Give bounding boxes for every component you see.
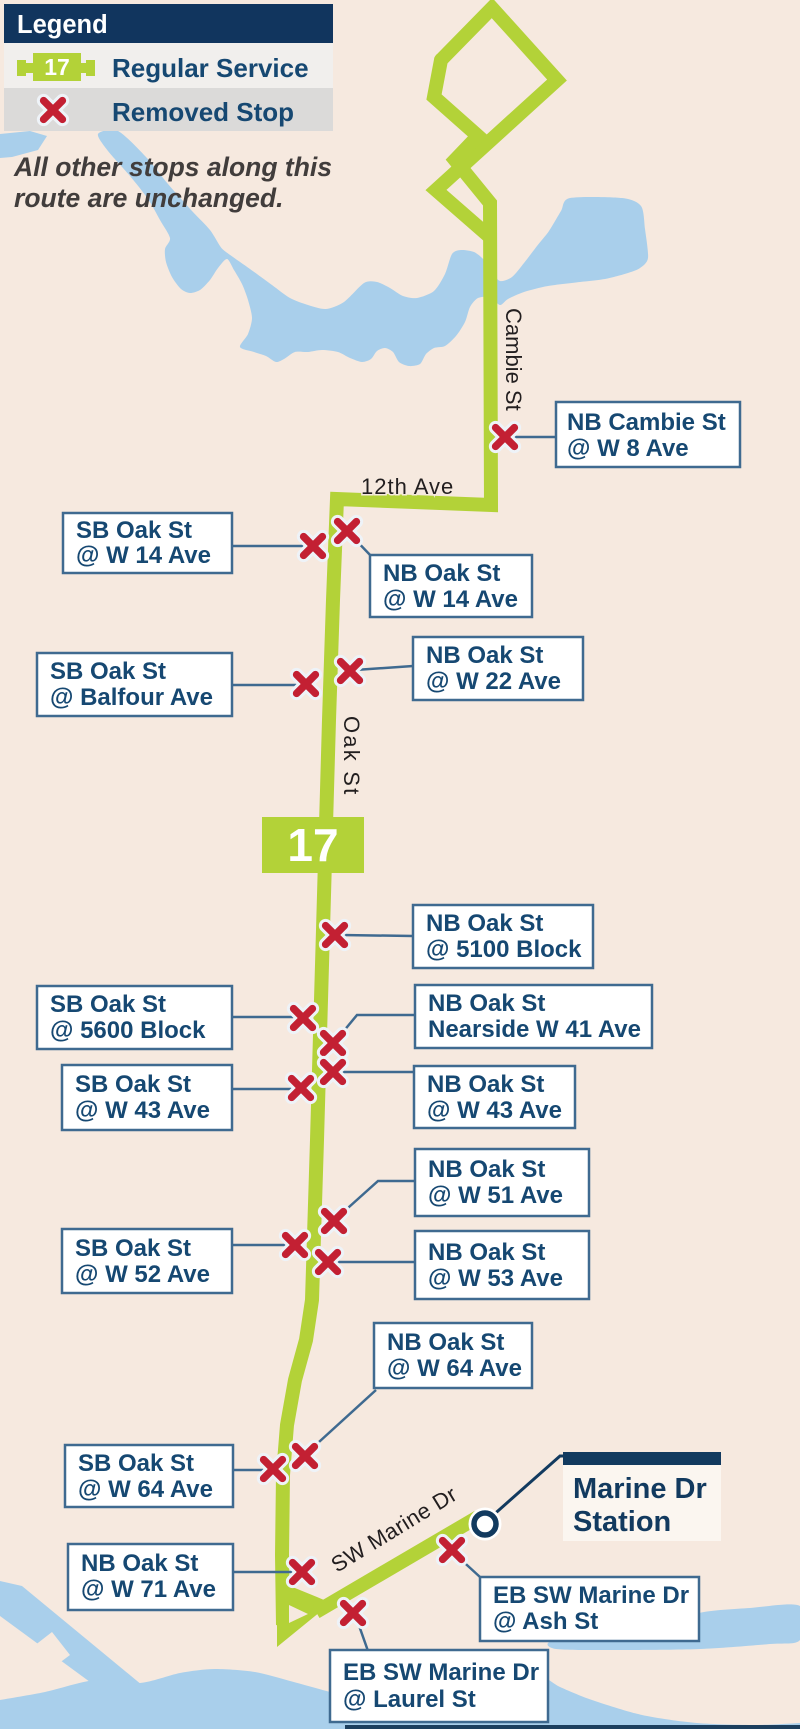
svg-text:@ 5600 Block: @ 5600 Block xyxy=(50,1017,206,1044)
svg-text:@ W 53 Ave: @ W 53 Ave xyxy=(428,1265,563,1292)
svg-text:NB Oak St: NB Oak St xyxy=(428,1239,545,1266)
svg-text:12th Ave: 12th Ave xyxy=(361,474,454,499)
svg-text:NB Oak St: NB Oak St xyxy=(428,990,545,1017)
svg-text:@ Ash St: @ Ash St xyxy=(493,1608,598,1635)
svg-text:@ W 51 Ave: @ W 51 Ave xyxy=(428,1182,563,1209)
svg-text:@ W 8 Ave: @ W 8 Ave xyxy=(567,435,689,462)
svg-text:SB Oak St: SB Oak St xyxy=(75,1235,191,1262)
svg-text:Removed Stop: Removed Stop xyxy=(112,97,294,127)
svg-text:17: 17 xyxy=(287,819,338,871)
svg-text:Legend: Legend xyxy=(17,11,108,39)
svg-text:SB Oak St: SB Oak St xyxy=(76,517,192,544)
svg-text:@ 5100 Block: @ 5100 Block xyxy=(426,936,582,963)
svg-text:NB Oak St: NB Oak St xyxy=(426,910,543,937)
svg-text:NB Oak St: NB Oak St xyxy=(428,1156,545,1183)
svg-text:SB Oak St: SB Oak St xyxy=(50,658,166,685)
svg-text:All other stops along this: All other stops along this xyxy=(13,152,332,182)
svg-text:NB Oak St: NB Oak St xyxy=(383,560,500,587)
svg-text:SB Oak St: SB Oak St xyxy=(50,991,166,1018)
svg-text:NB Oak St: NB Oak St xyxy=(387,1329,504,1356)
svg-text:route are unchanged.: route are unchanged. xyxy=(14,183,283,213)
svg-text:NB Oak St: NB Oak St xyxy=(427,1071,544,1098)
svg-text:Oak St: Oak St xyxy=(339,716,364,796)
svg-text:Marine Dr: Marine Dr xyxy=(573,1473,707,1505)
svg-text:@ W 43 Ave: @ W 43 Ave xyxy=(427,1097,562,1124)
svg-text:@ Balfour Ave: @ Balfour Ave xyxy=(50,684,213,711)
svg-text:EB SW Marine Dr: EB SW Marine Dr xyxy=(343,1659,539,1686)
svg-text:Regular Service: Regular Service xyxy=(112,53,309,83)
svg-text:@ W 64 Ave: @ W 64 Ave xyxy=(78,1476,213,1503)
svg-text:Nearside W 41 Ave: Nearside W 41 Ave xyxy=(428,1016,641,1043)
svg-text:SB Oak St: SB Oak St xyxy=(78,1450,194,1477)
svg-text:@ W 14 Ave: @ W 14 Ave xyxy=(383,586,518,613)
svg-text:NB Oak St: NB Oak St xyxy=(426,642,543,669)
svg-text:@ W 64 Ave: @ W 64 Ave xyxy=(387,1355,522,1382)
svg-text:NB Cambie St: NB Cambie St xyxy=(567,409,726,436)
svg-text:SB Oak St: SB Oak St xyxy=(75,1071,191,1098)
svg-text:17: 17 xyxy=(44,54,70,80)
svg-text:@ W 52 Ave: @ W 52 Ave xyxy=(75,1261,210,1288)
svg-text:EB SW Marine Dr: EB SW Marine Dr xyxy=(493,1582,689,1609)
svg-text:@ W 22 Ave: @ W 22 Ave xyxy=(426,668,561,695)
svg-text:@ W 43 Ave: @ W 43 Ave xyxy=(75,1097,210,1124)
svg-text:@ W 14 Ave: @ W 14 Ave xyxy=(76,542,211,569)
svg-text:Cambie St: Cambie St xyxy=(501,308,526,411)
svg-text:@ W 71 Ave: @ W 71 Ave xyxy=(81,1576,216,1603)
svg-text:@ Laurel St: @ Laurel St xyxy=(343,1686,476,1713)
svg-text:Station: Station xyxy=(573,1506,671,1538)
svg-text:NB Oak St: NB Oak St xyxy=(81,1550,198,1577)
